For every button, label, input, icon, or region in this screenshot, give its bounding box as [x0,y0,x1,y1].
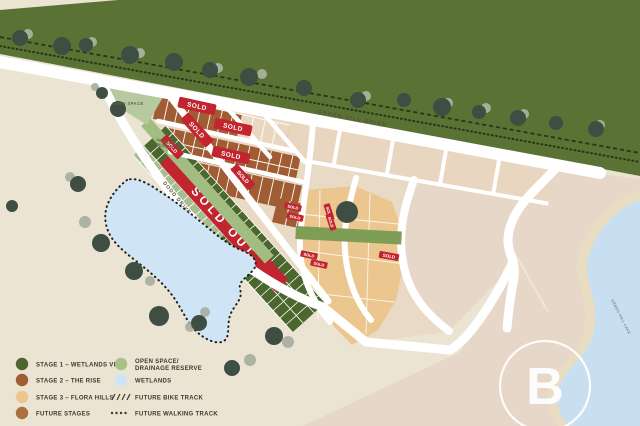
legend-swatch-wetlands [115,374,127,386]
tree-icon [265,327,283,345]
tree-icon [79,38,93,52]
legend-label-open-space: OPEN SPACE/ [135,359,179,365]
legend-swatch-stage1 [16,358,28,370]
tree-icon [53,37,71,55]
legend-label-stage2: STAGE 2 – THE RISE [36,379,101,385]
legend-swatch-open-space [115,358,127,370]
legend-label-future: FUTURE STAGES [36,412,90,418]
masterplan-map: SOLD OUT [0,0,640,426]
legend-swatch-future [16,407,28,419]
legend-label-walking-track: FUTURE WALKING TRACK [135,412,218,418]
tree-icon [588,121,604,137]
tree-icon [165,53,183,71]
tree-icon [70,176,86,192]
tree-icon [149,306,169,326]
tree-icon [549,116,563,130]
tree-icon [240,68,258,86]
legend-label-open-space-2: DRAINAGE RESERVE [135,366,202,372]
legend-swatch-stage2 [16,374,28,386]
legend-swatch-stage3 [16,391,28,403]
legend-label-stage3: STAGE 3 – FLORA HILLS [36,396,114,402]
tree-icon [350,92,366,108]
tree-icon [92,234,110,252]
tree-icon [257,69,267,79]
legend-label-wetlands: WETLANDS [135,379,171,385]
masterplan-page: SOLD OUT [0,0,640,426]
legend-label-bike-track: FUTURE BIKE TRACK [135,396,203,402]
logo-letter: B [526,358,564,416]
tree-icon [12,30,28,46]
tree-icon [472,105,486,119]
tree-icon [336,201,358,223]
tree-icon [6,200,18,212]
tree-icon [125,262,143,280]
tree-icon [191,315,207,331]
tree-icon [397,93,411,107]
tree-icon [433,98,451,116]
tree-icon [244,354,256,366]
tree-icon [121,46,139,64]
tree-icon [282,336,294,348]
tree-icon [296,80,312,96]
legend-label-stage1: STAGE 1 – WETLANDS VIEW [36,363,126,369]
tree-icon [96,87,108,99]
tree-icon [224,360,240,376]
tree-icon [202,62,218,78]
tree-icon [145,276,155,286]
tree-icon [79,216,91,228]
open-space-label: OPEN SPACE [112,101,143,106]
tree-icon [510,110,526,126]
